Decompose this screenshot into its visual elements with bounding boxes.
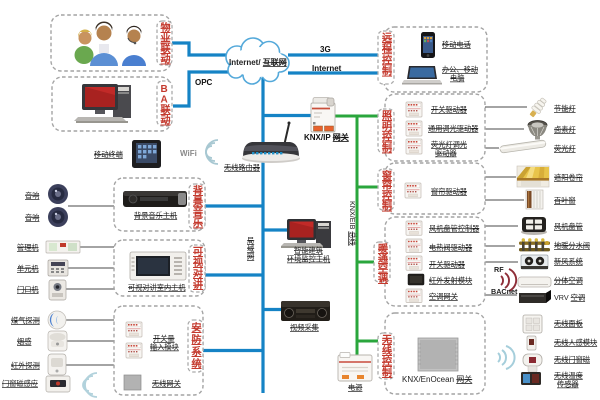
svg-text:风机盘管: 风机盘管	[554, 222, 583, 231]
svg-text:荧光灯: 荧光灯	[554, 144, 576, 153]
svg-text:分体空调: 分体空调	[554, 276, 583, 285]
svg-text:VRV 空调: VRV 空调	[554, 293, 585, 302]
svg-text:物业联动: 物业联动	[161, 21, 171, 66]
svg-text:开关驱动器: 开关驱动器	[429, 260, 465, 269]
svg-text:KNX/IP 网关: KNX/IP 网关	[304, 132, 349, 142]
svg-text:窗帘驱动器: 窗帘驱动器	[431, 187, 467, 196]
svg-text:风机盘管控制器: 风机盘管控制器	[429, 224, 479, 233]
svg-text:暖通空调: 暖通空调	[378, 242, 389, 285]
svg-text:可视对讲室内主机: 可视对讲室内主机	[128, 283, 186, 292]
svg-text:BACnet: BACnet	[491, 287, 518, 296]
svg-text:局域网: 局域网	[247, 236, 254, 261]
svg-text:电热阀驱动器: 电热阀驱动器	[429, 243, 472, 252]
svg-text:Internet: Internet	[312, 64, 342, 73]
svg-text:单元机: 单元机	[17, 264, 39, 273]
svg-text:照明控制: 照明控制	[382, 110, 392, 154]
svg-text:KNX/EIB 总线: KNX/EIB 总线	[348, 201, 357, 246]
svg-text:窗帘控制: 窗帘控制	[382, 169, 392, 213]
svg-text:移动电话: 移动电话	[442, 40, 471, 49]
svg-text:煤气探测: 煤气探测	[11, 316, 40, 325]
svg-text:KNX/EnOcean 网关: KNX/EnOcean 网关	[402, 374, 472, 384]
svg-text:遮阳卷帘: 遮阳卷帘	[554, 173, 583, 182]
svg-text:无线控制: 无线控制	[381, 334, 392, 379]
svg-text:无线人感模块: 无线人感模块	[554, 338, 597, 347]
svg-text:RF: RF	[494, 265, 504, 274]
svg-text:可视对讲: 可视对讲	[193, 246, 203, 291]
svg-text:电源: 电源	[348, 383, 362, 392]
svg-text:通用调光驱动器: 通用调光驱动器	[428, 124, 478, 133]
svg-text:门口机: 门口机	[17, 285, 39, 294]
svg-text:烟感: 烟感	[17, 337, 31, 346]
svg-text:门窗磁感应: 门窗磁感应	[2, 379, 38, 388]
svg-text:管理机: 管理机	[17, 243, 39, 252]
svg-text:无线温度传感器: 无线温度传感器	[554, 371, 583, 389]
svg-text:无线路由器: 无线路由器	[224, 163, 260, 172]
svg-text:3G: 3G	[320, 45, 331, 54]
svg-text:百叶窗: 百叶窗	[554, 196, 576, 205]
svg-text:音响: 音响	[25, 191, 39, 200]
svg-text:无线网关: 无线网关	[152, 379, 181, 388]
svg-text:视频采集: 视频采集	[290, 323, 319, 332]
svg-text:新风系统: 新风系统	[554, 257, 583, 266]
svg-text:开关驱动器: 开关驱动器	[431, 105, 467, 114]
svg-text:开关量输入模块: 开关量输入模块	[150, 334, 179, 352]
svg-text:地暖分水阀: 地暖分水阀	[554, 241, 590, 250]
svg-text:Internet/ 互联网: Internet/ 互联网	[229, 57, 287, 67]
svg-text:移动终端: 移动终端	[94, 150, 123, 159]
svg-text:无线面板: 无线面板	[554, 319, 583, 328]
svg-text:卤素灯: 卤素灯	[554, 125, 576, 134]
svg-text:节能灯: 节能灯	[554, 104, 576, 113]
svg-text:背景音乐: 背景音乐	[193, 184, 203, 229]
svg-text:空调网关: 空调网关	[429, 292, 458, 301]
svg-text:远程控制: 远程控制	[382, 32, 392, 78]
svg-text:OPC: OPC	[195, 78, 213, 87]
svg-text:无线门窗磁: 无线门窗磁	[554, 355, 590, 364]
svg-text:音响: 音响	[25, 213, 39, 222]
svg-text:背景音乐主机: 背景音乐主机	[134, 211, 178, 220]
svg-text:WiFi: WiFi	[180, 149, 197, 158]
svg-text:红外发射模块: 红外发射模块	[429, 276, 472, 285]
svg-text:安防系统: 安防系统	[192, 321, 202, 370]
svg-text:红外探测: 红外探测	[11, 361, 40, 370]
